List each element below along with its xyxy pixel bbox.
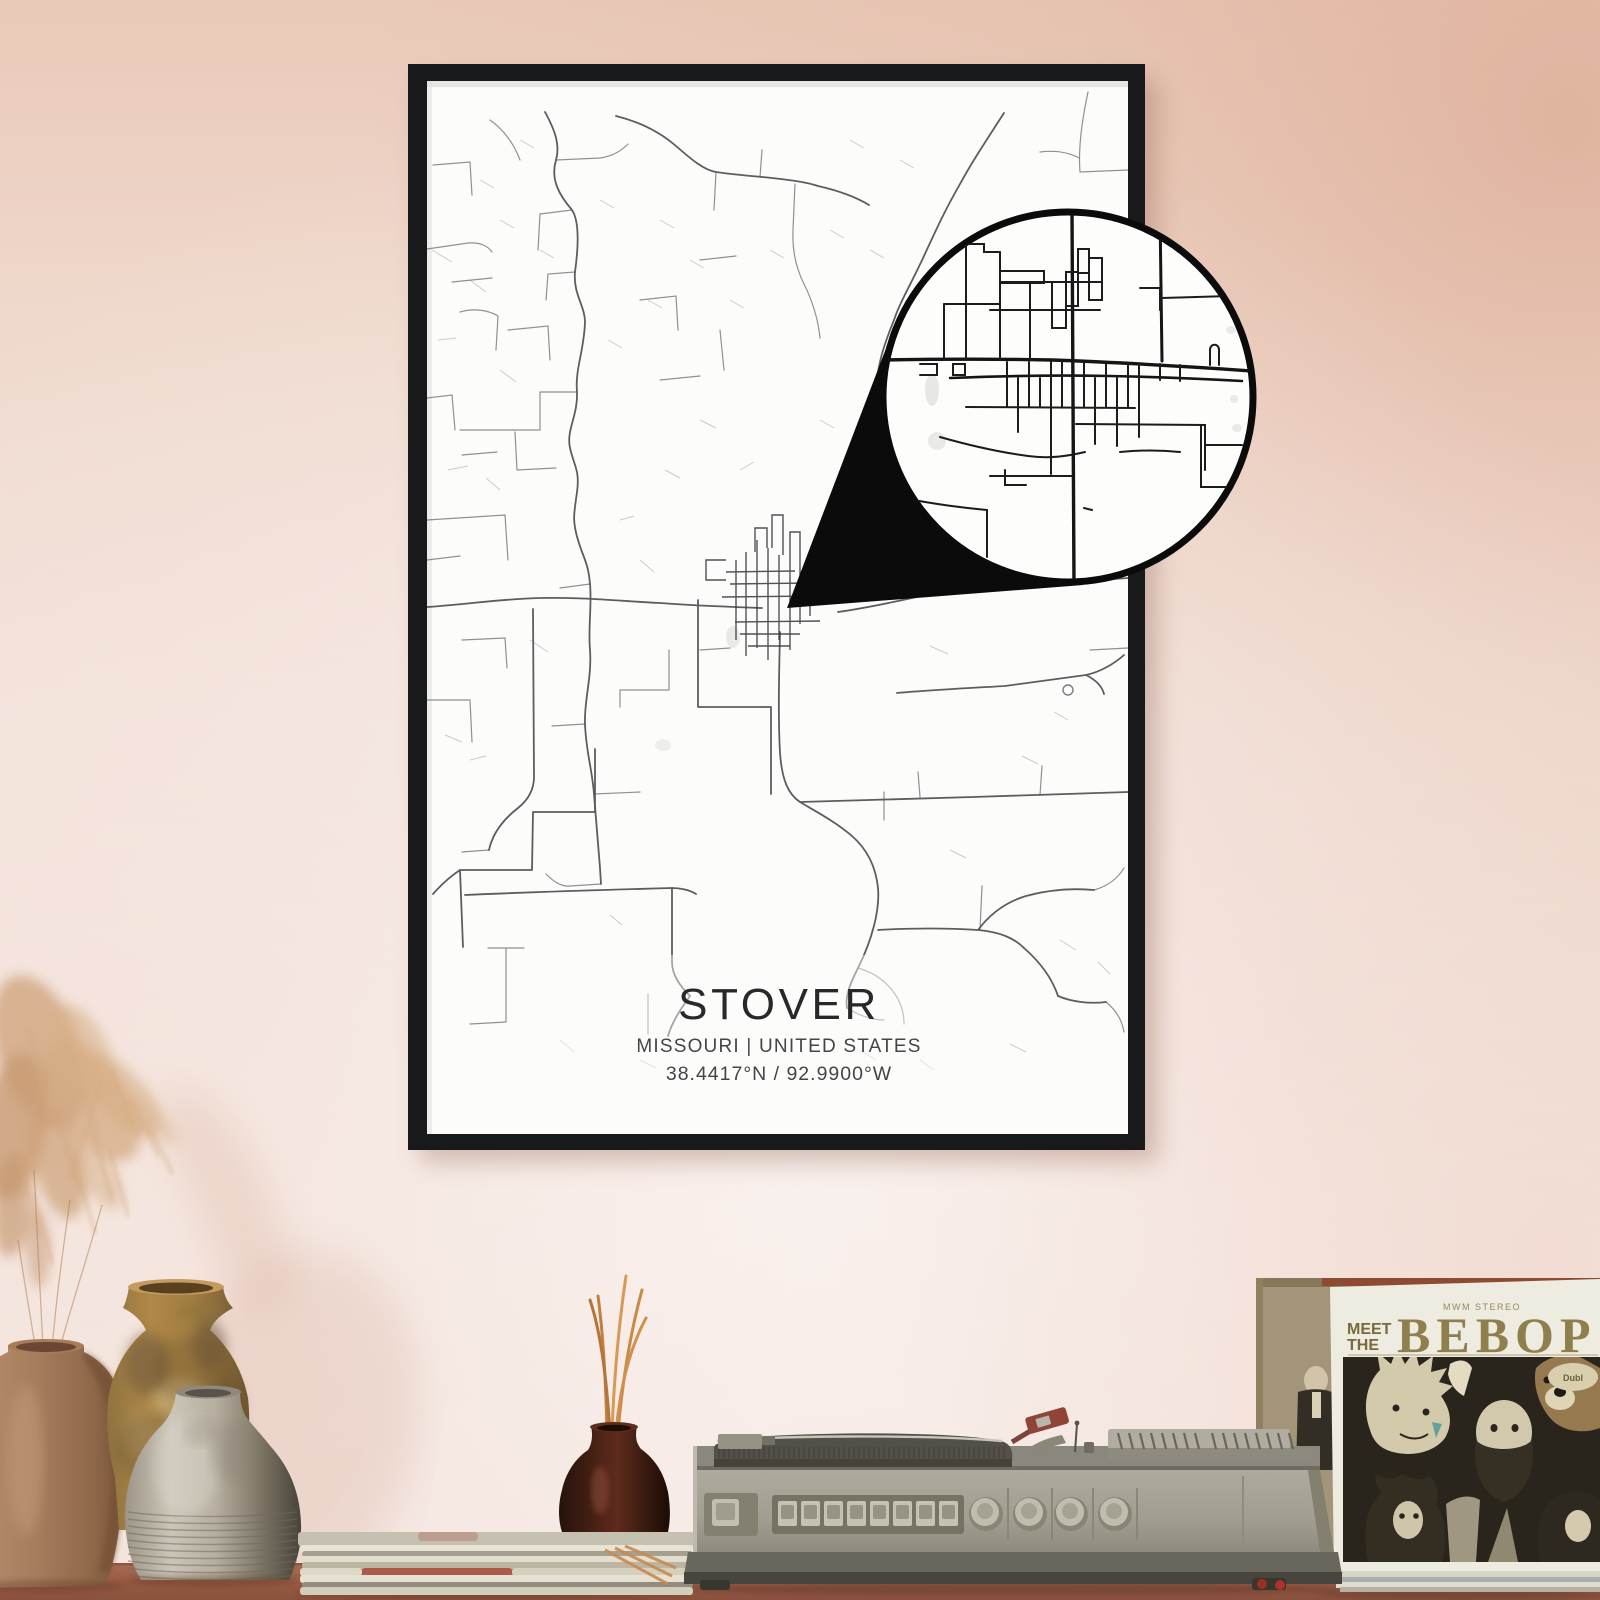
svg-text:MEET: MEET <box>1347 1321 1392 1338</box>
svg-text:STOVER: STOVER <box>678 980 880 1029</box>
svg-text:THE: THE <box>1347 1337 1379 1354</box>
svg-text:Dubl: Dubl <box>1563 1373 1583 1383</box>
svg-text:MISSOURI | UNITED STATES: MISSOURI | UNITED STATES <box>636 1036 921 1057</box>
svg-text:38.4417°N / 92.9900°W: 38.4417°N / 92.9900°W <box>666 1063 892 1085</box>
